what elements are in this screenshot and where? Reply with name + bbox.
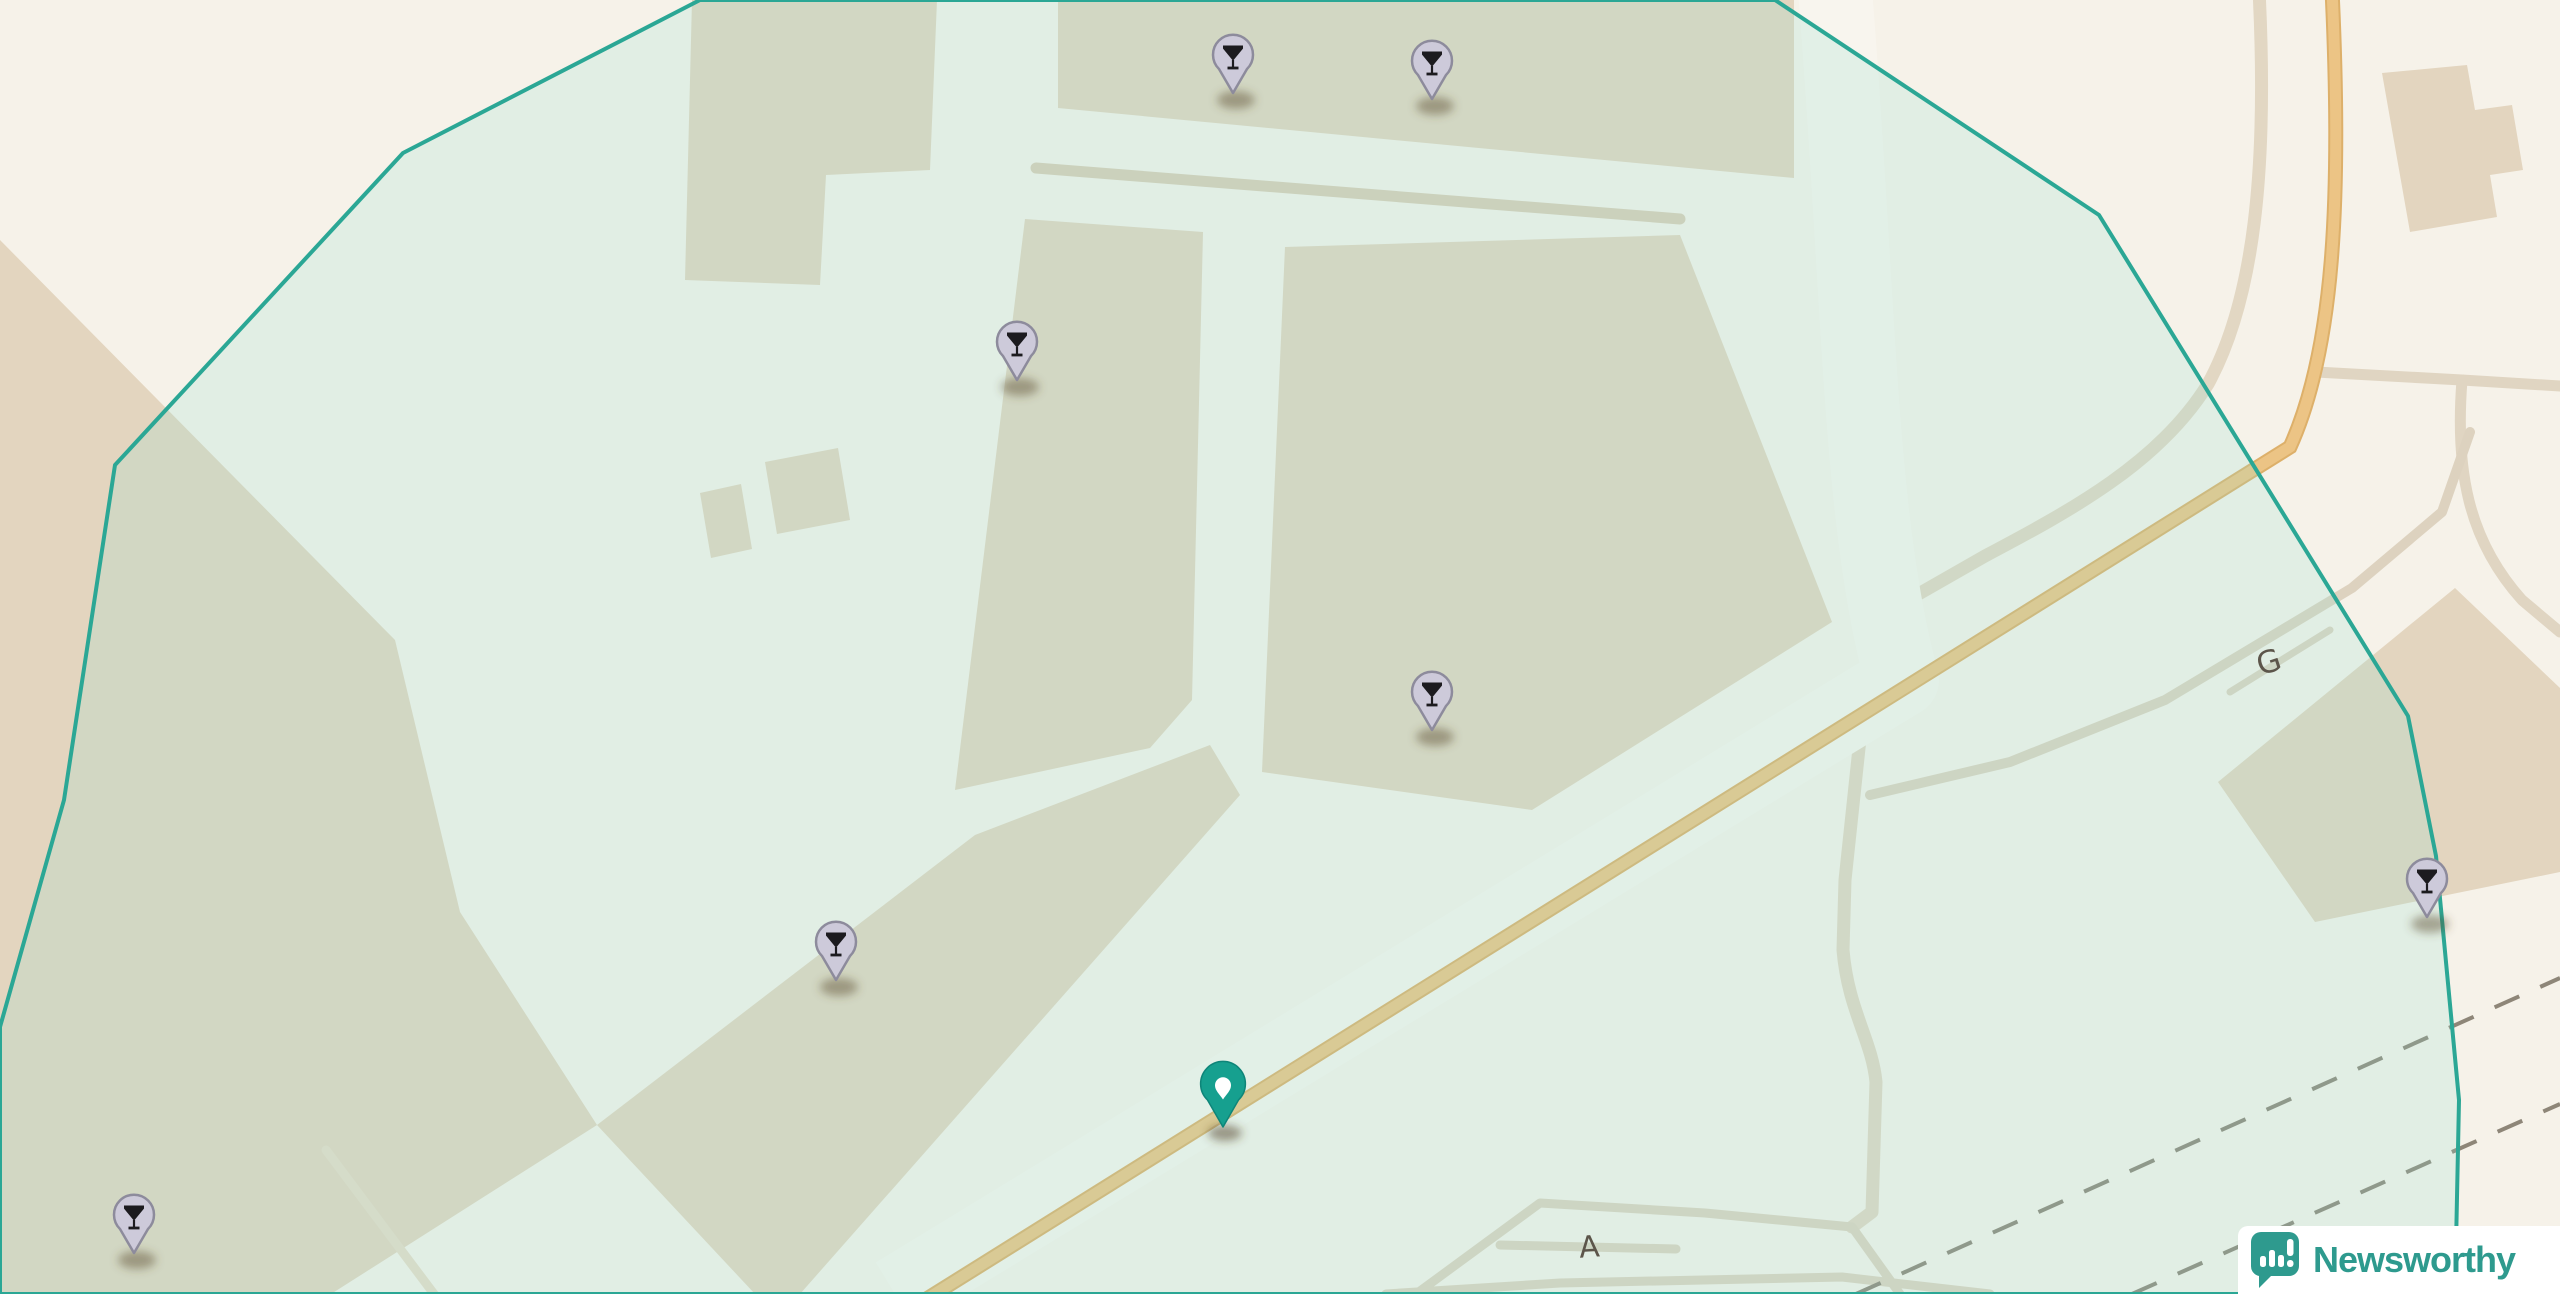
road-label-A: A [1578, 1229, 1601, 1265]
pin-shadow [118, 1251, 156, 1269]
logo-bar-1 [2260, 1256, 2266, 1267]
map-canvas[interactable]: G A [0, 0, 2560, 1294]
logo-exclaim-dot [2287, 1260, 2294, 1267]
pin-shadow [1001, 378, 1039, 396]
newsworthy-logo-icon [2249, 1230, 2301, 1290]
logo-exclaim-bar [2287, 1239, 2294, 1256]
newsworthy-logo[interactable]: Newsworthy [2238, 1226, 2560, 1294]
pin-shadow [1416, 728, 1454, 746]
pin-shadow [1217, 91, 1255, 109]
logo-bar-3 [2278, 1255, 2284, 1267]
logo-bar-2 [2269, 1250, 2275, 1267]
newsworthy-logo-text: Newsworthy [2313, 1239, 2515, 1281]
map-root: G A [0, 0, 2560, 1294]
pin-shadow [820, 978, 858, 996]
pin-shadow [1416, 97, 1454, 115]
pin-shadow [1208, 1125, 1242, 1141]
pin-shadow [2411, 915, 2449, 933]
